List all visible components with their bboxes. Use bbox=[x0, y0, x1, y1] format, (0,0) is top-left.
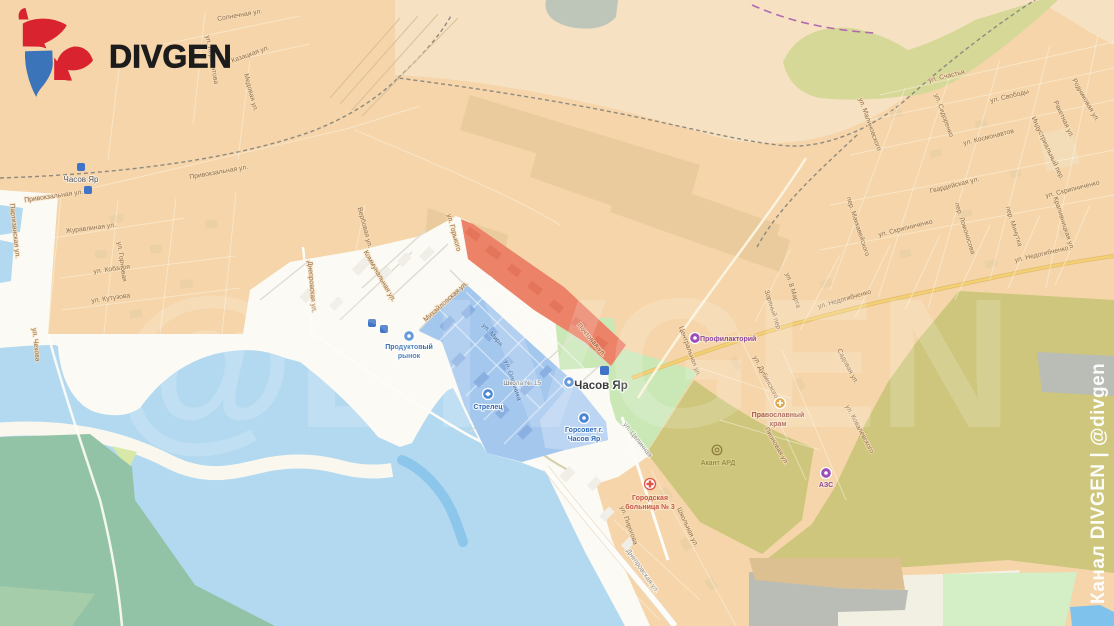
svg-text:Городская: Городская bbox=[632, 495, 668, 502]
svg-text:DIVGEN: DIVGEN bbox=[109, 39, 232, 75]
svg-text:Часов Яр: Часов Яр bbox=[63, 175, 99, 184]
svg-text:Канал DIVGEN | @divgen: Канал DIVGEN | @divgen bbox=[1088, 363, 1109, 604]
svg-text:@DIVGEN: @DIVGEN bbox=[113, 261, 1013, 467]
svg-text:больница № 3: больница № 3 bbox=[625, 503, 675, 511]
svg-text:АЗС: АЗС bbox=[819, 482, 833, 489]
